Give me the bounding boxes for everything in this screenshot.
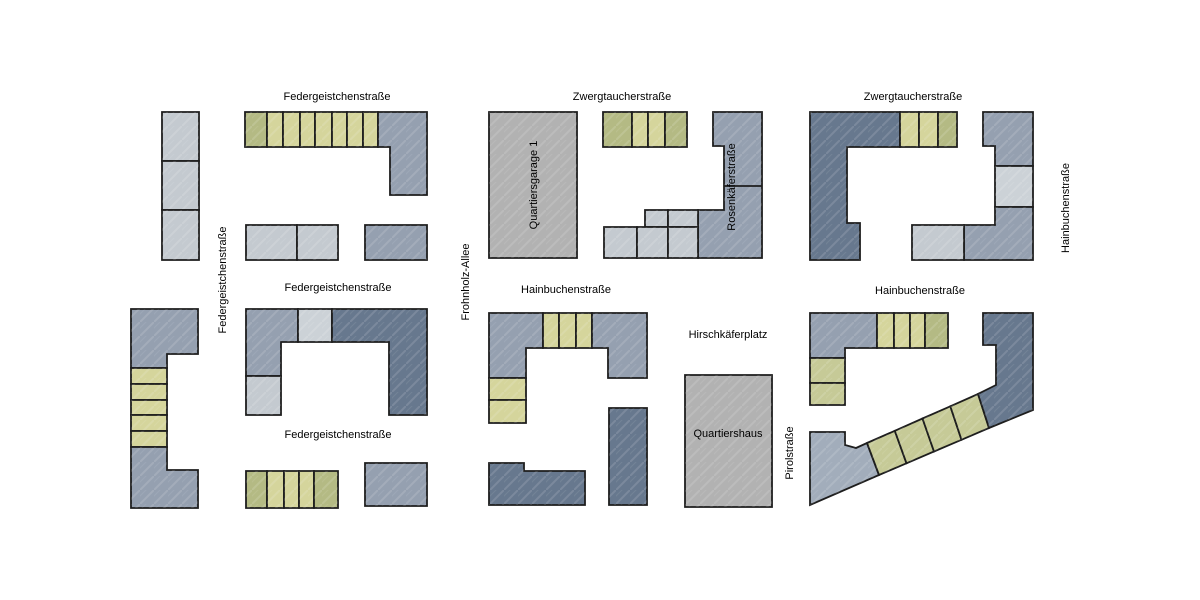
label-place-hirschkaeferplatz: Hirschkäferplatz — [689, 329, 768, 341]
label-street-zwergtaucherstrasse-west: Zwergtaucherstraße — [573, 91, 671, 103]
label-street-hainbuchenstrasse-mid: Hainbuchenstraße — [521, 284, 611, 296]
building-ne-right-4-texture — [912, 225, 964, 260]
building-sw-cell-3-texture — [131, 400, 167, 415]
building-sw-cell-1-texture — [131, 368, 167, 384]
building-sc-step-texture — [489, 463, 585, 505]
building-rosenkaefer-rowB-1-texture — [604, 227, 637, 258]
building-sw-c-lightcell-texture — [298, 309, 332, 342]
site-plan-svg: FedergeistchenstraßeZwergtaucherstraßeZw… — [0, 0, 1200, 600]
building-ne-row-2-texture — [919, 112, 938, 147]
building-nw-strip-2-texture — [162, 161, 199, 210]
label-street-federgeistchenstrasse-north: Federgeistchenstraße — [284, 91, 391, 103]
label-building-quartiershaus-label: Quartiershaus — [693, 428, 763, 440]
building-sw-cell-2-texture — [131, 384, 167, 400]
building-se-top-cell-2-texture — [894, 313, 910, 348]
building-sw-bracket-bottom-texture — [131, 447, 198, 508]
building-sw-row-1-texture — [246, 471, 267, 508]
building-rosenkaefer-rowB-2-texture — [637, 227, 668, 258]
building-sc-n-right-texture — [592, 313, 647, 378]
building-sc-col-cell-2-texture — [489, 400, 526, 423]
building-ne-right-2-texture — [995, 166, 1033, 207]
building-sc-col-cell-1-texture — [489, 378, 526, 400]
building-se-top-cell-1-texture — [877, 313, 894, 348]
building-nw-solo-texture — [365, 225, 427, 260]
building-nw-row-5-texture — [315, 112, 332, 147]
building-nw-row-8-texture — [363, 112, 378, 147]
site-plan: FedergeistchenstraßeZwergtaucherstraßeZw… — [0, 0, 1200, 600]
building-se-top-cell-4-texture — [925, 313, 948, 348]
building-nw-row-2-texture — [267, 112, 283, 147]
label-street-hainbuchenstrasse-east: Hainbuchenstraße — [875, 285, 965, 297]
label-street-pirolstrasse: Pirolstraße — [784, 426, 796, 479]
building-nw-row-7-texture — [347, 112, 363, 147]
label-street-federgeistchenstrasse-mid: Federgeistchenstraße — [285, 282, 392, 294]
building-sw-row-4-texture — [299, 471, 314, 508]
building-sw-c-dark-texture — [332, 309, 427, 415]
building-nw-strip-1-texture — [162, 112, 199, 161]
building-sc-tower-texture — [609, 408, 647, 505]
label-building-quartiersgarage-label: Quartiersgarage 1 — [528, 141, 540, 230]
building-se-top-texture — [810, 313, 877, 358]
building-ne-cshape-texture — [810, 112, 900, 260]
building-ne-row-3-texture — [938, 112, 957, 147]
building-ne-row-1-texture — [900, 112, 919, 147]
building-nw-row-1-texture — [245, 112, 267, 147]
building-ne-right-1-texture — [983, 112, 1033, 166]
building-se-col-cell-1-texture — [810, 358, 845, 383]
building-rosenkaefer-rowA-1-texture — [645, 210, 668, 227]
building-nw-duo-1-texture — [246, 225, 297, 260]
building-nc-row-1-texture — [603, 112, 632, 147]
building-sw-row-3-texture — [284, 471, 299, 508]
label-street-frohnholz-allee: Frohnholz-Allee — [460, 243, 472, 320]
building-se-col-cell-2-texture — [810, 383, 845, 405]
building-sw-row-2-texture — [267, 471, 284, 508]
buildings-layer — [131, 112, 1033, 508]
building-sw-cell-4-texture — [131, 415, 167, 431]
building-rosenkaefer-rowA-2-texture — [668, 210, 698, 227]
building-nw-duo-2-texture — [297, 225, 338, 260]
building-sw-row-5-texture — [314, 471, 338, 508]
building-sc-n-cell-1-texture — [543, 313, 559, 348]
building-nc-row-4-texture — [665, 112, 687, 147]
building-nw-strip-3-texture — [162, 210, 199, 260]
label-street-federgeistchenstrasse-vertical: Federgeistchenstraße — [217, 227, 229, 334]
building-nw-corner-texture — [378, 112, 427, 195]
building-sc-n-cell-2-texture — [559, 313, 576, 348]
building-se-dark-texture — [978, 313, 1033, 428]
building-sw-cell-5-texture — [131, 431, 167, 447]
building-sw-c-lowercell-texture — [246, 376, 281, 415]
building-sc-n-cell-3-texture — [576, 313, 592, 348]
label-street-zwergtaucherstrasse-east: Zwergtaucherstraße — [864, 91, 962, 103]
building-nc-row-2-texture — [632, 112, 648, 147]
building-nw-row-3-texture — [283, 112, 300, 147]
building-sw-bracket-top-texture — [131, 309, 198, 368]
building-sc-n-left-texture — [489, 313, 543, 378]
building-se-top-cell-3-texture — [910, 313, 925, 348]
building-quartiershaus-texture — [685, 375, 772, 507]
building-nw-row-6-texture — [332, 112, 347, 147]
building-ne-right-3-texture — [964, 207, 1033, 260]
building-sw-solo-texture — [365, 463, 427, 506]
label-street-hainbuchenstrasse-right: Hainbuchenstraße — [1060, 163, 1072, 253]
building-rosenkaefer-rowB-3-texture — [668, 227, 698, 258]
label-street-rosenkaeferstrasse: Rosenkäferstraße — [726, 143, 738, 230]
building-nc-row-3-texture — [648, 112, 665, 147]
label-street-federgeistchenstrasse-south: Federgeistchenstraße — [285, 429, 392, 441]
building-nw-row-4-texture — [300, 112, 315, 147]
